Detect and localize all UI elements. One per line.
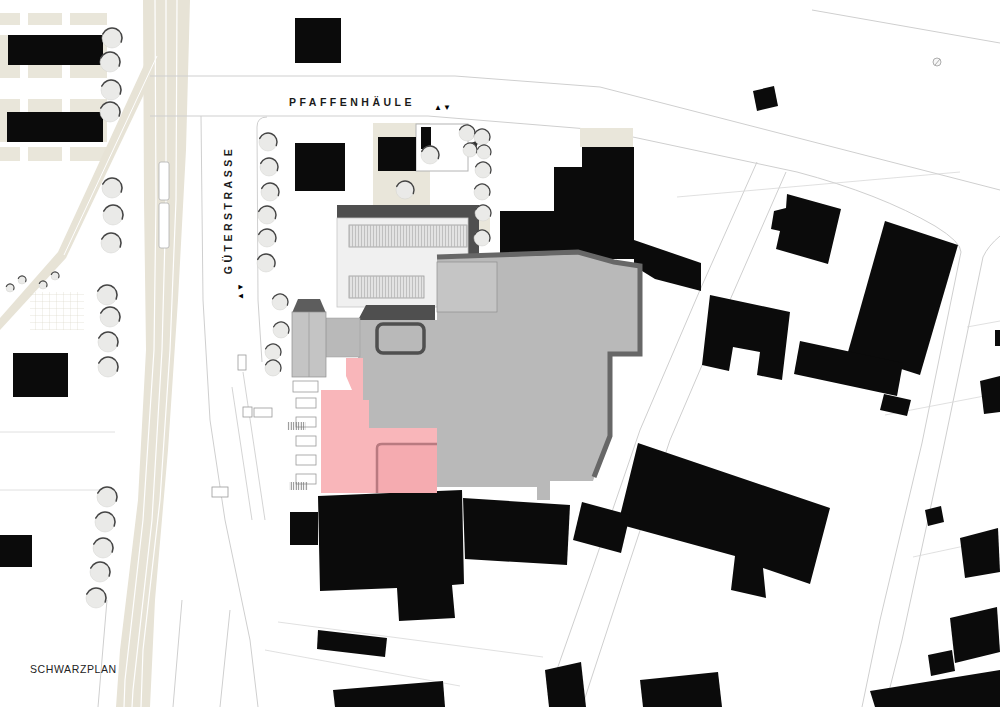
loading-dock <box>296 398 316 408</box>
direction-arrows-icon: ▲▼ <box>236 282 245 300</box>
site-plan: PFAFFENHÄULE GÜTERSTRASSE ▲▼ ▲▼ SCHWARZP… <box>0 0 1000 707</box>
building-black <box>295 18 341 63</box>
building-black <box>318 490 464 621</box>
plan-title: SCHWARZPLAN <box>30 663 117 675</box>
building-black <box>771 194 841 264</box>
building-black <box>950 607 1000 663</box>
plot-gap <box>0 25 107 35</box>
building-black <box>753 86 778 111</box>
building-black <box>928 650 955 676</box>
shed <box>243 407 252 417</box>
street-line <box>173 600 182 707</box>
loading-dock <box>293 381 318 392</box>
building-black <box>640 672 722 707</box>
ramp-hatch <box>287 422 306 430</box>
highlighted-building-upper <box>377 444 437 493</box>
building-black <box>634 240 701 291</box>
building-black <box>545 662 586 707</box>
street-line <box>257 117 267 127</box>
skylight-hatch <box>349 276 424 298</box>
building-black <box>870 670 1000 707</box>
building-black <box>960 528 1000 578</box>
street-label-gueterstrasse: GÜTERSTRASSE <box>222 146 234 274</box>
site-plan-svg <box>0 0 1000 707</box>
courtyard-ramp <box>377 324 424 353</box>
allotment-grid <box>30 292 84 330</box>
building-black <box>500 147 634 259</box>
rail-platform <box>159 203 169 248</box>
plot-gap <box>0 142 107 147</box>
skylight-hatch <box>349 225 467 247</box>
west-wing-roof-edge <box>358 305 435 320</box>
building-black <box>995 330 1000 346</box>
street-line <box>812 10 1000 43</box>
parcel-line <box>967 321 1000 327</box>
direction-arrows-icon: ▲▼ <box>434 103 452 112</box>
street-line <box>220 610 230 707</box>
building-black <box>290 512 318 545</box>
building-black <box>925 506 944 526</box>
building-black <box>980 376 1000 414</box>
building-black <box>618 443 830 598</box>
connector-building <box>323 318 360 357</box>
building-black <box>702 295 790 380</box>
building-black <box>8 35 103 65</box>
building-black <box>573 502 630 553</box>
building-black <box>378 137 416 171</box>
parcel-line <box>677 172 960 197</box>
building-black <box>13 353 68 397</box>
parcel-line <box>265 650 460 686</box>
street-line <box>98 600 107 707</box>
green-area <box>580 128 633 147</box>
loading-dock <box>296 436 316 446</box>
building-black <box>880 394 911 416</box>
annex-building <box>437 262 497 312</box>
vehicle <box>212 487 228 497</box>
loading-dock <box>296 455 316 465</box>
curb-line <box>243 372 265 520</box>
building-black <box>7 112 103 142</box>
building-black <box>317 630 387 657</box>
building-black <box>333 681 445 707</box>
building-black <box>0 535 32 567</box>
building-black <box>848 221 958 375</box>
rail-platform <box>159 162 169 200</box>
building-black <box>463 498 570 565</box>
building-black <box>295 143 345 191</box>
vehicle <box>238 355 246 370</box>
ramp-hatch <box>289 482 308 490</box>
shed <box>254 408 272 417</box>
gatehouse-roof <box>292 299 326 313</box>
building-layer <box>0 0 1000 707</box>
street-label-pfaffenhaeule: PFAFFENHÄULE <box>289 96 415 108</box>
